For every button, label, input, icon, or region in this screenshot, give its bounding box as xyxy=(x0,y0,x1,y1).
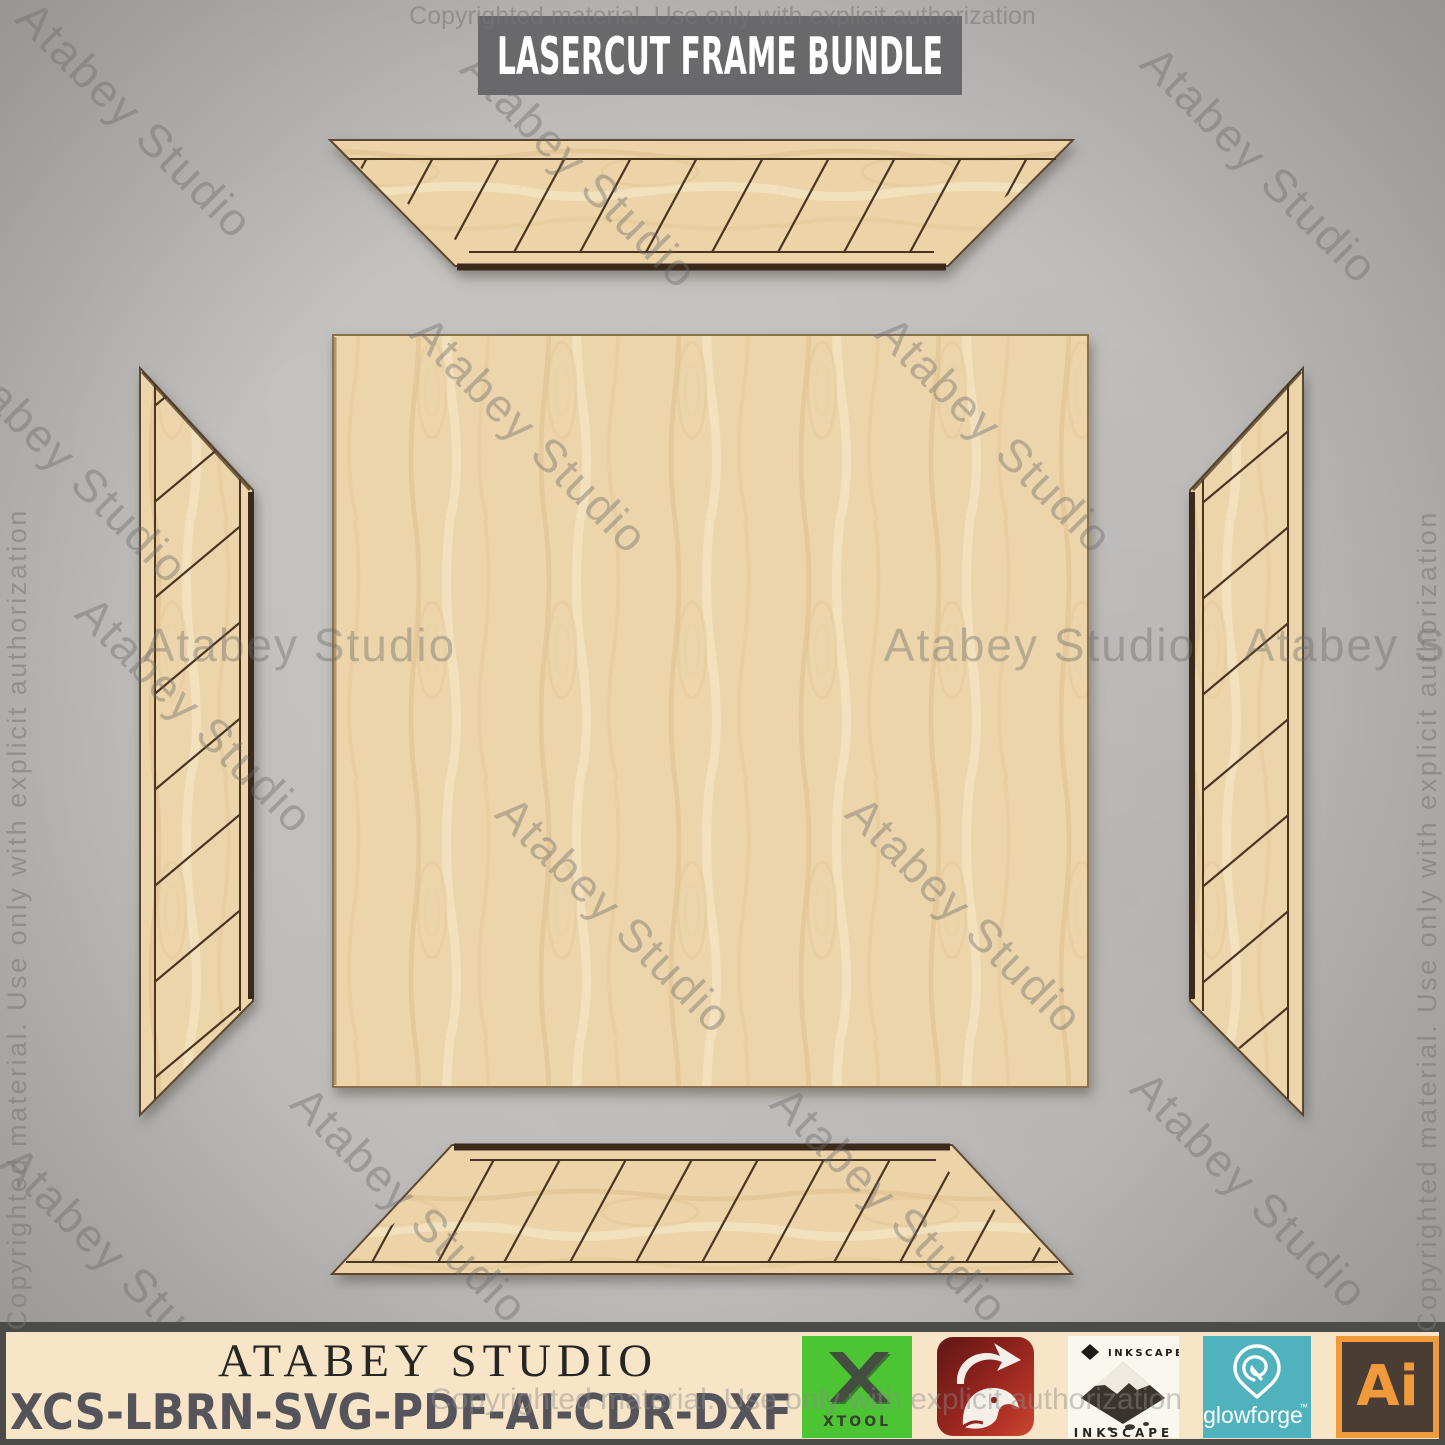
adobe-illustrator-mark: Ai xyxy=(1356,1359,1419,1415)
inkscape-label-bottom: INKSCAPE xyxy=(1074,1426,1174,1438)
formats-svg: XCS-LBRN-SVG-PDF-AI-CDR-DXF xyxy=(6,1383,806,1439)
info-banner: ATABEY STUDIO XCS-LBRN-SVG-PDF-AI-CDR-DX… xyxy=(0,1322,1445,1445)
file-formats-list: XCS-LBRN-SVG-PDF-AI-CDR-DXF xyxy=(10,1384,792,1439)
glowforge-tm: ™ xyxy=(1299,1402,1308,1412)
lightburn-logo xyxy=(937,1337,1034,1436)
frame-side-bottom xyxy=(290,1128,1171,1292)
xtool-icon: XTOOL xyxy=(802,1336,912,1438)
frame-side-right xyxy=(1175,311,1317,1198)
frame-side-left xyxy=(126,311,268,1198)
glowforge-pin-icon: glowforge ™ xyxy=(1203,1336,1311,1438)
backer-panel xyxy=(333,335,1088,1087)
title-bar: LASERCUT FRAME BUNDLE xyxy=(478,16,962,95)
product-image: LASERCUT FRAME BUNDLE Atabey StudioAtabe… xyxy=(0,0,1445,1445)
title-bar-text-svg: LASERCUT FRAME BUNDLE xyxy=(478,16,962,95)
adobe-illustrator-logo: Ai xyxy=(1336,1336,1439,1438)
banner-text-block: ATABEY STUDIO XCS-LBRN-SVG-PDF-AI-CDR-DX… xyxy=(6,1332,866,1439)
page-title: LASERCUT FRAME BUNDLE xyxy=(497,27,943,87)
studio-name: ATABEY STUDIO xyxy=(218,1335,658,1387)
studio-name-svg: ATABEY STUDIO xyxy=(6,1332,866,1387)
inkscape-icon: INKSCAPE INKSCAPE xyxy=(1068,1336,1179,1438)
xtool-logo: XTOOL xyxy=(802,1336,912,1438)
lightburn-dragon-icon xyxy=(937,1337,1034,1436)
inkscape-label-top: INKSCAPE xyxy=(1108,1348,1179,1359)
inkscape-logo: INKSCAPE INKSCAPE xyxy=(1068,1336,1179,1438)
xtool-label: XTOOL xyxy=(823,1414,891,1430)
frame-side-top xyxy=(300,130,1174,282)
lasercut-frame-scene xyxy=(0,0,1445,1445)
glowforge-label: glowforge xyxy=(1203,1402,1303,1428)
glowforge-logo: glowforge ™ xyxy=(1203,1336,1311,1438)
